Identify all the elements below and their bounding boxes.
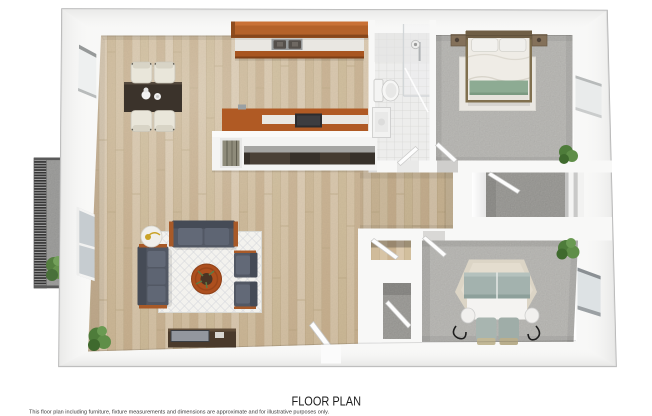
svg-text:FLOOR PLAN: FLOOR PLAN bbox=[292, 394, 362, 409]
svg-text:This floor plan including furn: This floor plan including furniture, fix… bbox=[29, 410, 329, 416]
